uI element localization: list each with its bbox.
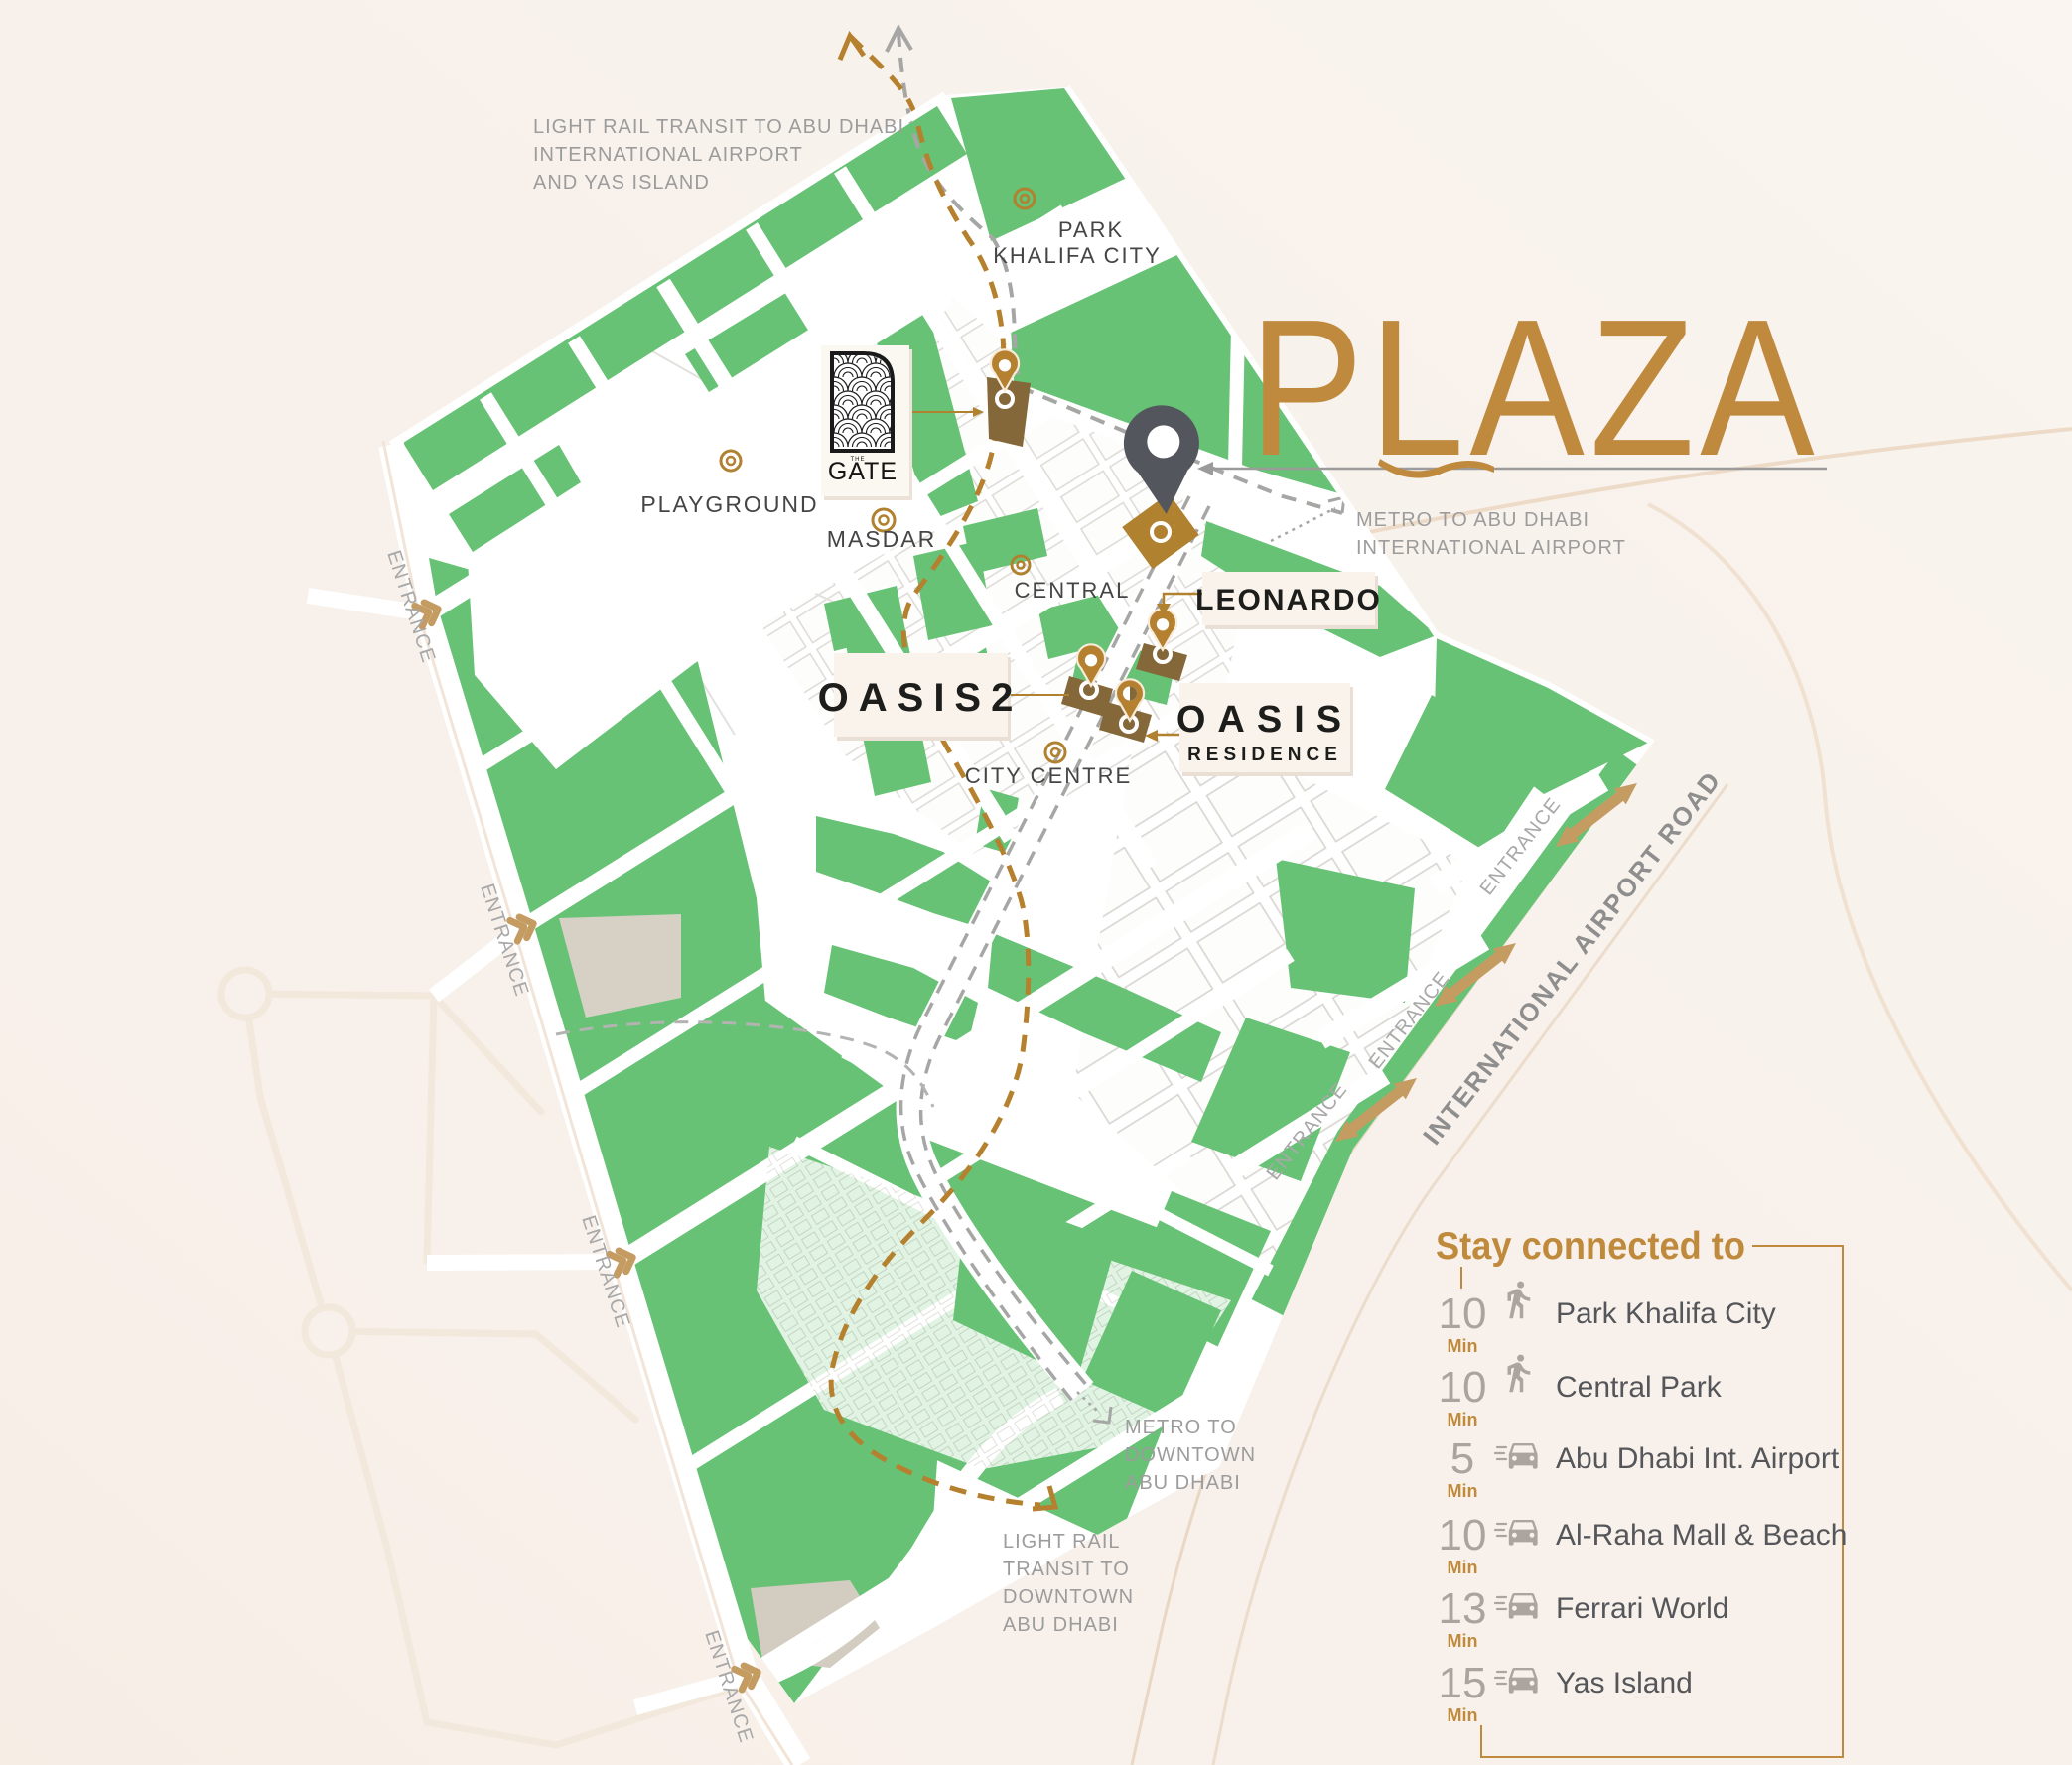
svg-text:TRANSIT TO: TRANSIT TO: [1003, 1559, 1130, 1580]
svg-text:Yas Island: Yas Island: [1556, 1667, 1693, 1699]
svg-text:PLAZA: PLAZA: [1249, 279, 1820, 496]
svg-text:KHALIFA CITY: KHALIFA CITY: [993, 243, 1162, 268]
svg-text:MASDAR: MASDAR: [827, 526, 936, 552]
svg-text:OASIS2: OASIS2: [818, 676, 1024, 720]
svg-text:RESIDENCE: RESIDENCE: [1187, 745, 1342, 765]
svg-text:Min: Min: [1448, 1705, 1478, 1725]
svg-text:CENTRAL: CENTRAL: [1015, 578, 1131, 603]
svg-text:CITY CENTRE: CITY CENTRE: [965, 763, 1132, 788]
svg-text:10: 10: [1439, 1511, 1487, 1560]
svg-text:Abu Dhabi Int. Airport: Abu Dhabi Int. Airport: [1556, 1442, 1840, 1475]
svg-text:METRO TO: METRO TO: [1125, 1417, 1237, 1438]
svg-text:5: 5: [1450, 1434, 1474, 1483]
svg-text:LEONARDO: LEONARDO: [1195, 584, 1382, 616]
svg-text:Min: Min: [1448, 1631, 1478, 1651]
svg-text:Min: Min: [1448, 1410, 1478, 1429]
svg-text:OASIS: OASIS: [1176, 699, 1353, 741]
svg-text:Central Park: Central Park: [1556, 1371, 1723, 1404]
svg-text:Min: Min: [1448, 1481, 1478, 1501]
svg-text:Ferrari World: Ferrari World: [1556, 1592, 1728, 1625]
svg-text:INTERNATIONAL AIRPORT: INTERNATIONAL AIRPORT: [1356, 537, 1626, 559]
svg-text:METRO TO ABU DHABI: METRO TO ABU DHABI: [1356, 509, 1589, 531]
svg-text:GATE: GATE: [828, 458, 898, 485]
svg-text:10: 10: [1439, 1363, 1487, 1412]
svg-text:DOWNTOWN: DOWNTOWN: [1125, 1444, 1256, 1466]
svg-text:LIGHT RAIL TRANSIT TO ABU DHAB: LIGHT RAIL TRANSIT TO ABU DHABI: [533, 116, 904, 138]
svg-text:10: 10: [1439, 1290, 1487, 1338]
svg-text:ABU DHABI: ABU DHABI: [1003, 1614, 1119, 1636]
svg-text:Min: Min: [1448, 1558, 1478, 1577]
svg-text:Al-Raha Mall & Beach: Al-Raha Mall & Beach: [1556, 1519, 1847, 1552]
svg-text:INTERNATIONAL AIRPORT: INTERNATIONAL AIRPORT: [533, 144, 803, 166]
svg-text:Park Khalifa City: Park Khalifa City: [1556, 1297, 1776, 1330]
svg-text:15: 15: [1439, 1659, 1487, 1707]
svg-text:Min: Min: [1448, 1336, 1478, 1356]
svg-text:LIGHT RAIL: LIGHT RAIL: [1003, 1531, 1121, 1553]
svg-text:Stay connected to: Stay connected to: [1436, 1225, 1745, 1268]
svg-text:13: 13: [1439, 1584, 1487, 1633]
svg-text:DOWNTOWN: DOWNTOWN: [1003, 1586, 1134, 1608]
svg-text:AND YAS ISLAND: AND YAS ISLAND: [533, 172, 710, 194]
svg-text:ABU DHABI: ABU DHABI: [1125, 1472, 1241, 1494]
svg-text:PARK: PARK: [1058, 217, 1124, 242]
svg-text:PLAYGROUND: PLAYGROUND: [640, 491, 818, 517]
